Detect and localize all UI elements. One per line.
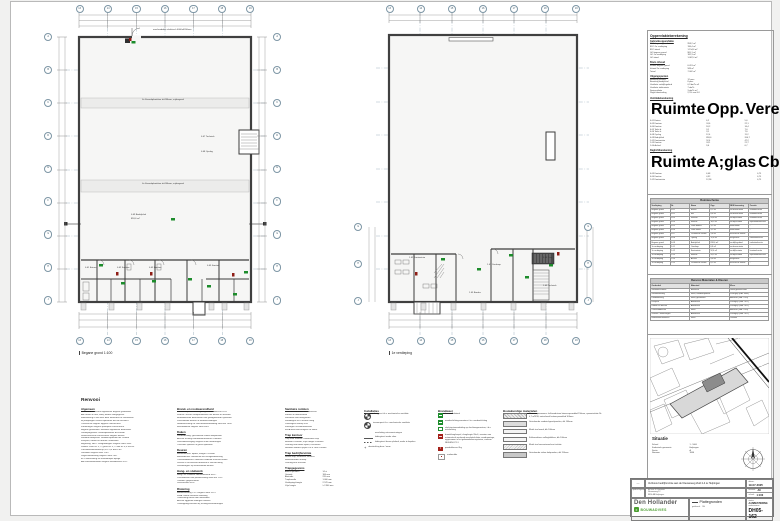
table-row: 1e verdieping1.05Technische ruimte8,2 m²… [651, 261, 769, 265]
table-cell: 6,7 [745, 145, 780, 148]
table: VerdiepingNr.NaamOpp.NEN benamingFunctie… [650, 203, 769, 265]
client-label-cell: opdrachtgever: [631, 488, 645, 499]
list-item: Leuning buis Ø42mm [285, 462, 369, 465]
list-item: H [354, 260, 362, 268]
table-cell: GO totaal [650, 57, 688, 60]
room-label: 0.05 Sanitair [207, 265, 219, 268]
project-title: Verbouw bedrijfsruimte aan de Nieuweweg … [645, 479, 746, 488]
list-item: H [584, 260, 592, 268]
drawn-label: getekend: [692, 506, 700, 508]
grid-bubbles-top-right-plan: 13141516171819 [386, 5, 581, 13]
list-item: 17 [510, 337, 518, 345]
legend-row: leidingtracé boven plafond, nader te bep… [364, 441, 448, 444]
lining-wall-hatch-icon [503, 444, 527, 450]
table-cell: 1.02 Kantoortuin [650, 179, 706, 182]
section-title: Trap bedrijfsruimte [285, 451, 369, 455]
site-map [650, 338, 769, 434]
extract-point-icon [364, 413, 371, 420]
format-label: formaat: [749, 489, 756, 492]
calc-section-title: Bruto inhoud [650, 61, 769, 64]
list-item: 16 [479, 337, 487, 345]
revision-mark: — [631, 479, 645, 488]
area-calculation-block: Oppervlakteberekening Gebruiksoppervlakt… [650, 34, 769, 181]
materials-block: Renvooi Materialen & Kleuren OnderdeelMa… [650, 278, 769, 321]
table: Inhoud begane grond6.413 m³Inhoud 1e ver… [650, 65, 697, 73]
legend-text: poederblusser 6kg [445, 447, 496, 450]
pipe-under-floor-icon [364, 438, 373, 439]
grid-bubbles-bottom-right-plan: 13141516171819 [386, 337, 581, 345]
format-scale-cell: formaat: A0 schaal: 1:100 [746, 488, 773, 499]
table-row: GO totaal1.087,4 m² [650, 57, 699, 60]
table-cell: 1e verdieping [651, 261, 671, 265]
floor-band-label: 4x Kanaalplaatvloer d=260mm, vrijdragend [83, 183, 243, 186]
grid-bubbles-top-left-plan: 13141516171819 [76, 5, 255, 13]
list-item: 17 [189, 337, 197, 345]
daylight-table: RuimteA;glasCbCuA;eqVereistAanw.%0.03 Ka… [650, 153, 769, 181]
stair-data-table: Aantal optreden14 stOptrede184 mmAantred… [285, 471, 369, 488]
list-item: A [44, 33, 52, 41]
list-item: Blusmiddelen volgens NEN 4001 [177, 426, 263, 429]
table: Bezetting kantoor12 pers.Bezetting bedri… [650, 79, 701, 96]
list-item: C [44, 99, 52, 107]
subject-value: Plattegronden [700, 500, 722, 504]
divider [647, 334, 772, 335]
grid-bubbles-left-right-plan: GHJ [354, 223, 362, 305]
list-item: Ontstoppingsstukken bij richtingsverande… [177, 503, 263, 506]
list-item: 18 [541, 5, 549, 13]
list-item: 19 [572, 5, 580, 13]
company-subtitle: BOUWADVIES [641, 508, 667, 512]
room-schedule-table: VerdiepingNr.NaamOpp.NEN benamingFunctie… [650, 203, 769, 265]
grid-bubbles-right-left-plan: ABCDEFGHJ [273, 33, 281, 305]
section-title: Sanitaire ruimten [285, 407, 369, 411]
legend-text: noodverlichtingsarmatuur t.b.v. noodverl… [445, 420, 496, 423]
section-title: Trapgegevens [285, 466, 369, 470]
door-note-label: overheaddeur elektrisch 4000x4200mm [153, 29, 191, 32]
legend-row: vluchtrouteaanduiding op vluchtwegarmatu… [438, 427, 496, 432]
list-item: C [273, 99, 281, 107]
renvooi-title: Renvooi [81, 398, 100, 403]
legend-row: noodverlichtingsarmatuur t.b.v. noodverl… [438, 420, 496, 425]
calc-section-title: Ventilatieberekening [650, 97, 769, 100]
legend-text: Kalkzandsteen vellingblokken, dik 100mm [529, 437, 603, 440]
list-item: 15 [132, 337, 140, 345]
pipe-above-ceiling-icon [364, 442, 373, 443]
table-cell: 1.04 Archief [650, 145, 706, 148]
table-header-cell: Opp. [706, 100, 744, 120]
table: RuimteOpp.VereistToevoerAfvoerVoorz.0.01… [650, 100, 780, 148]
table-row: 1.02 Kantoortuin12,960,750,807,785,24 m²… [650, 179, 780, 182]
section-title: Algemeen [81, 407, 169, 411]
list-item: G [273, 230, 281, 238]
sand-lime-block-hatch-icon [503, 437, 527, 443]
calc-table-go: BVO begane grond958,2 m²BVO 1e verdiepin… [650, 43, 769, 60]
section-title: Riolering [177, 487, 263, 491]
client-lines: de heer R. RoossenNieuweweg 128854 AB He… [645, 488, 746, 499]
table-cell: Technische ruimte [690, 261, 710, 265]
legend-text: Geïsoleerde stalen dakpanelen, dik 150mm [529, 452, 603, 455]
list-item: B [273, 66, 281, 74]
list-item: G [584, 223, 592, 231]
room-label: 0.09 Bedrijfshal [131, 214, 146, 217]
fire-hose-reel-icon [438, 434, 443, 439]
north-arrow-icon [740, 446, 766, 472]
table-cell: 8,2 m² [709, 261, 729, 265]
list-item: A [273, 33, 281, 41]
list-item: 19 [246, 337, 254, 345]
table-row: Nummer1846 [652, 452, 700, 455]
table-cell: 2,5% van GO [688, 92, 702, 95]
calc-table-inhoud: Inhoud begane grond6.413 m³Inhoud 1e ver… [650, 65, 769, 73]
list-item: 13 [386, 5, 394, 13]
list-item: G [44, 230, 52, 238]
section-title: Trap kantoor [285, 433, 369, 437]
table-row: 1.04 Archief9,66,7overstr.mech.MV [650, 145, 780, 148]
room-label: 1.02 Kantoortuin [409, 257, 425, 260]
section-title: Brand- en rookwerendheid [177, 407, 263, 411]
section-lines: Peil = 0 = bovenkant afgewerkte begane g… [81, 411, 169, 463]
list-item: Deurdrangers op zelfsluitende deuren [177, 465, 263, 468]
utility-line-icon [364, 433, 373, 434]
list-item: F [273, 197, 281, 205]
list-item: 17 [510, 5, 518, 13]
list-item: MIVA-toilet met beugels en alarm [285, 429, 369, 432]
table-cell: Totaal [650, 71, 688, 74]
legend-row: toevoerpunt t.b.v. mechanische ventilati… [364, 422, 448, 429]
materials-table: OnderdeelMateriaalKleurGevelmetselwerkBa… [650, 283, 769, 321]
legend-row: Geïsoleerde stalen dakpanelen, dik 150mm [503, 452, 603, 458]
list-item: 14 [417, 337, 425, 345]
room-label: 1.01 Overloop [487, 264, 501, 267]
calc-table-uitgangspunten: Bezetting kantoor12 pers.Bezetting bedri… [650, 79, 769, 96]
legend-text: afzuigpunt t.b.v. mechanische ventilatie [373, 413, 448, 416]
list-item: Alle werkzaamheden volgens Bouwbesluit 2… [81, 461, 169, 464]
legend-text: Metal stud wand, dik 100mm [529, 429, 603, 432]
table-cell: 1.05 [670, 261, 690, 265]
legend-text: rookmelder [447, 454, 496, 457]
list-item: 13 [76, 337, 84, 345]
table-cell: Vrije hoogte [285, 485, 323, 488]
section-lines: Dakbedekking: geïsoleerde stalen dakpane… [177, 435, 263, 447]
self-closing-door-icon [438, 413, 443, 418]
scale-label: schaal: [749, 494, 755, 497]
room-label: 1.03 Techniek [543, 285, 556, 288]
renvooi-col-algemeen: Algemeen Peil = 0 = bovenkant afgewerkte… [81, 405, 169, 464]
list-item: G [354, 223, 362, 231]
section-lines: Hang- en sluitwerk inbraakwerend SKG**Vl… [177, 474, 263, 486]
fire-extinguisher-icon [438, 447, 443, 452]
legend-text: Nieuwe spouwmuur: kalkzandsteen binnensp… [529, 413, 603, 418]
table-cell: Staal [690, 317, 729, 321]
list-item: 13 [76, 5, 84, 13]
section-lines: Binnenriolering PVC volgens NEN 3215HWA:… [177, 492, 263, 507]
emergency-light-icon [438, 420, 443, 425]
list-item: J [584, 297, 592, 305]
room-area-label: 818,6 m² [131, 218, 140, 221]
renvooi-col-3: Sanitaire ruimten Wandcloset met inbouwr… [285, 405, 369, 487]
metal-stud-hatch-icon [503, 429, 527, 435]
list-item: 16 [161, 5, 169, 13]
legend-title: Brandweer [438, 409, 496, 413]
legend-row: Metal stud wand, dik 100mm [503, 429, 603, 435]
table: Schaal1 : 1000Kadastrale gemeenteHelping… [652, 444, 700, 455]
legend-brandweer: Brandweer deur zelfsluitend noodverlicht… [438, 407, 496, 462]
dash-icon [692, 502, 698, 503]
list-item: Overstort spuwers in gevel opnemen [177, 444, 263, 447]
legend-text: Geïsoleerde sandwichgevelpanelen, dik 10… [529, 421, 603, 424]
floorplans-linework [41, 2, 611, 362]
legend-row: rookmelder [438, 454, 496, 461]
room-label: 0.03 Kantine [149, 267, 161, 270]
escape-route-sign-icon [438, 427, 443, 432]
renvooi-col-2: Brand- en rookwerendheid Brandcompartime… [177, 405, 263, 506]
room-schedule-block: Ruimteschema VerdiepingNr.NaamOpp.NEN be… [650, 198, 769, 266]
table-cell: 1.087,4 m² [688, 57, 699, 60]
table-header-row: RuimteA;glasCbCuA;eqVereistAanw.% [650, 153, 780, 173]
logo-icon: ≡ [634, 507, 639, 512]
list-item: 18 [218, 5, 226, 13]
list-item: D [44, 132, 52, 140]
table-cell: technische ruimte [729, 261, 749, 265]
scale-value: 1:100 [757, 494, 764, 497]
section-lines: Stalen trap, thermisch verzinktRoostertr… [285, 456, 369, 465]
room-label: 0.01 Entree [85, 267, 96, 270]
format-value: A0 [757, 489, 760, 492]
list-item: H [273, 263, 281, 271]
list-item: Deurkrukken RVS [177, 482, 263, 485]
supply-point-icon [364, 422, 371, 429]
title-block-row-company: Den Hollander ≡ BOUWADVIES Plattegronden… [631, 498, 773, 521]
list-item: 8854 AB Helpingen [648, 494, 743, 496]
table-cell: Hemelwaterafvoeren [651, 317, 690, 321]
date-value: 19-07-2025 [749, 483, 771, 487]
section-title: Hang- en sluitwerk [177, 469, 263, 473]
list-item: H [44, 263, 52, 271]
divider [647, 274, 772, 275]
section-title: Deuren [177, 448, 263, 452]
plan-caption-first-floor: 1e verdieping [389, 351, 412, 355]
smoke-detector-icon [438, 454, 445, 461]
table-header-cell: Cb [757, 153, 780, 173]
room-label: 0.07 Techniek [201, 136, 214, 139]
list-item: 16 [479, 5, 487, 13]
subject-cell: Plattegronden getekend: DH [689, 498, 746, 521]
list-item: 14 [104, 337, 112, 345]
list-item: 19 [246, 5, 254, 13]
list-item: E [273, 165, 281, 173]
company-logo: ≡ BOUWADVIES [634, 507, 686, 512]
room-label: 1.05 Bordes [469, 292, 481, 295]
table-cell: 7.002 m³ [688, 71, 698, 74]
table-cell: Nummer [652, 452, 690, 455]
client-label: opdrachtgever: [633, 489, 646, 491]
table-cell: - [749, 261, 769, 265]
plan-caption-ground-floor: Begane grond 1:100 [79, 351, 112, 355]
table-header-cell: Vereist [745, 100, 780, 120]
legend-row: afzuigpunt t.b.v. mechanische ventilatie [364, 413, 448, 420]
drawing-sheet: 13141516171819 13141516171819 ABCDEFGHJ … [10, 1, 772, 516]
section-lines: Wandcloset met inbouwreservoirFontein in… [285, 411, 369, 431]
door-swing-icon: + [364, 446, 366, 450]
table-row: Vrije hoogte≥ 2.300 mm [285, 485, 335, 488]
list-item: 15 [132, 5, 140, 13]
title-block: — Verbouw bedrijfsruimte aan de Nieuwewe… [630, 478, 774, 517]
list-item: 16 [161, 337, 169, 345]
legend-row: Kalkzandsteen vellingblokken, dik 100mm [503, 437, 603, 443]
table-cell: 9,6 [706, 145, 744, 148]
list-item: Hekwerk bordes spijlen h.o.h. max 100mm [285, 447, 369, 450]
legend-row: Metal stud voorzetwand met isolatie [503, 444, 603, 450]
table-row: Totaal7.002 m³ [650, 71, 697, 74]
legend-bouwkundig: Bouwkundige materialen Nieuwe spouwmuur:… [503, 407, 603, 460]
table-cell: Daglichttoetreding [650, 92, 688, 95]
legend-row: Geïsoleerde sandwichgevelpanelen, dik 10… [503, 421, 603, 427]
section-lines: Trap naar kantoor: hardhouten trapBreedt… [285, 438, 369, 450]
calc-title: Oppervlakteberekening [650, 34, 769, 38]
list-item: 17 [189, 5, 197, 13]
title-block-row-project: — Verbouw bedrijfsruimte aan de Nieuwewe… [631, 479, 773, 488]
sandwich-panel-hatch-icon [503, 421, 527, 427]
legend-row: leidingtracé onder vloer [364, 436, 448, 439]
company-cell: Den Hollander ≡ BOUWADVIES [631, 498, 689, 521]
legend-text: deur zelfsluitend [445, 413, 496, 416]
legend-installaties: Installaties afzuigpunt t.b.v. mechanisc… [364, 407, 448, 452]
divider [647, 194, 772, 195]
table-cell: Verzinkt [729, 317, 768, 321]
calc-section-title: Uitgangspunten [650, 75, 769, 78]
list-item: J [273, 296, 281, 304]
table-header-cell: A;glas [706, 153, 757, 173]
list-item: 15 [448, 5, 456, 13]
roof-panel-hatch-icon [503, 452, 527, 458]
table-cell: 12,96 [706, 179, 757, 182]
table: RuimteA;glasCbCuA;eqVereistAanw.%0.03 Ka… [650, 153, 780, 181]
table: OnderdeelMateriaalKleurGevelmetselwerkBa… [650, 283, 769, 321]
section-lines: Brandcompartimentering volgens Bouwbeslu… [177, 411, 263, 428]
list-item: 15 [448, 337, 456, 345]
number-cell: status: AANBESTEDING werknummer: DH05-16… [746, 498, 773, 521]
list-item: 14 [417, 5, 425, 13]
grid-bubbles-left-left-plan: ABCDEFGHJ [44, 33, 52, 305]
list-item: 18 [541, 337, 549, 345]
list-item: E [44, 165, 52, 173]
table-cell: ≥ 2.300 mm [323, 485, 335, 488]
table-cell: 1846 [690, 452, 701, 455]
title-block-row-client: opdrachtgever: de heer R. RoossenNieuwew… [631, 488, 773, 499]
legend-text: toevoerpunt t.b.v. mechanische ventilati… [373, 422, 448, 425]
room-label: 1.04 Trap [543, 257, 552, 260]
legend-title: Installaties [364, 409, 448, 413]
table-cell: Helpingen [690, 447, 701, 450]
calc-section-title: Daglichtberekening [650, 149, 769, 152]
site-map-details: Schaal1 : 1000Kadastrale gemeenteHelping… [652, 444, 732, 455]
legend-row: deur zelfsluitend [438, 413, 496, 418]
company-name: Den Hollander [634, 500, 686, 506]
table-row: Daglichttoetreding2,5% van GO [650, 92, 701, 95]
floor-band-label: 4x Kanaalplaatvloer d=260mm, vrijdragend [83, 99, 243, 102]
section-title: Daken [177, 430, 263, 434]
cavity-wall-hatch-icon [503, 413, 527, 419]
legend-row: poederblusser 6kg [438, 447, 496, 452]
legend-text: brandslanghaspel, slanglengte 20m1, voor… [445, 434, 496, 444]
table-header-cell: Ruimte [650, 100, 706, 120]
grid-bubbles-right-right-plan: GHJ [584, 223, 592, 305]
legend-row: brandslanghaspel, slanglengte 20m1, voor… [438, 434, 496, 444]
legend-text: draairichting deur / raam [368, 446, 448, 449]
list-item: D [273, 132, 281, 140]
legend-row: aansluiting nutsvoorzieningen [364, 432, 448, 435]
legend-title: Bouwkundige materialen [503, 409, 603, 413]
date-cell: datum: 19-07-2025 [746, 479, 773, 488]
site-map-title: Situatie [652, 436, 668, 441]
legend-text: vluchtrouteaanduiding op vluchtwegarmatu… [445, 427, 496, 432]
section-lines: Binnendeuren: opdek, hoogte 2315mmBuiten… [177, 453, 263, 468]
table-header-row: RuimteOpp.VereistToevoerAfvoerVoorz. [650, 100, 780, 120]
list-item: F [44, 197, 52, 205]
room-label: 0.02 Kantoor [117, 267, 130, 270]
list-item: 14 [104, 5, 112, 13]
legend-text: Metal stud voorzetwand met isolatie [529, 444, 603, 447]
legend-row: Nieuwe spouwmuur: kalkzandsteen binnensp… [503, 413, 603, 419]
drawn-value: DH [702, 506, 705, 508]
table: BVO begane grond958,2 m²BVO 1e verdiepin… [650, 43, 699, 60]
list-item: B [44, 66, 52, 74]
list-item: 18 [218, 337, 226, 345]
list-item: 19 [572, 337, 580, 345]
list-item: J [354, 297, 362, 305]
room-label: 0.08 Opslag [201, 151, 213, 154]
table-header-cell: Ruimte [650, 153, 706, 173]
table-row: HemelwaterafvoerenStaalVerzinkt [651, 317, 769, 321]
list-item: J [44, 296, 52, 304]
grid-bubbles-bottom-left-plan: 13141516171819 [76, 337, 255, 345]
legend-row: + draairichting deur / raam [364, 446, 448, 450]
table-cell: 0,75 [757, 179, 780, 182]
table: Aantal optreden14 stOptrede184 mmAantred… [285, 471, 335, 488]
ventilation-table: RuimteOpp.VereistToevoerAfvoerVoorz.0.01… [650, 100, 769, 148]
drawing-number: DH05-162 [749, 508, 771, 520]
list-item: 13 [386, 337, 394, 345]
